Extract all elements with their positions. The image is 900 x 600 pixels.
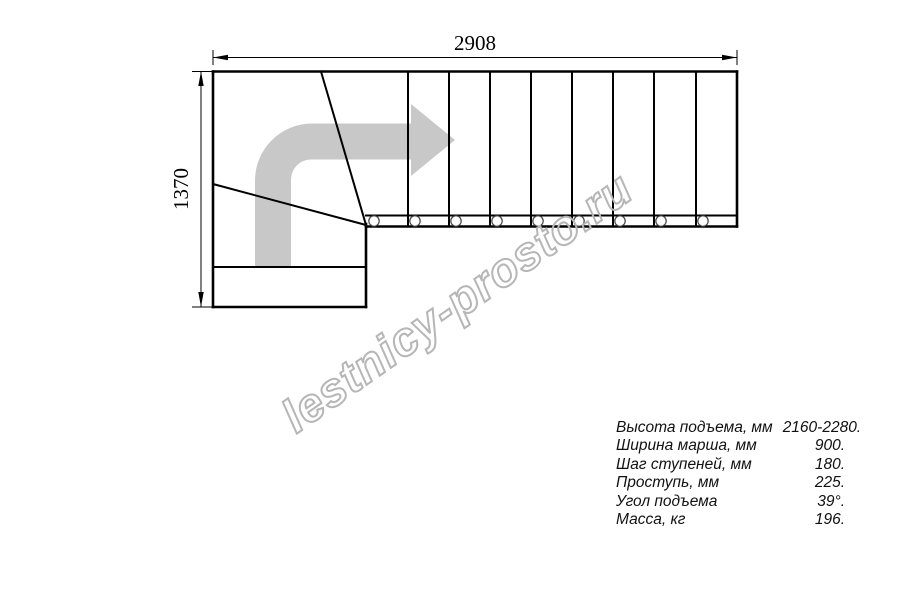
dimension-arrow-right-icon — [722, 55, 737, 60]
spec-label: Шаг ступеней, мм — [616, 456, 752, 474]
spec-value: 900. — [805, 437, 845, 455]
baluster-markers — [369, 216, 708, 226]
staircase-drawing-page: 2908 1370 — [0, 0, 900, 600]
staircase-outline — [213, 72, 737, 308]
baluster-icon — [656, 216, 666, 226]
dimension-arrow-up-icon — [198, 72, 203, 87]
baluster-icon — [574, 216, 584, 226]
baluster-icon — [451, 216, 461, 226]
height-dimension-label: 1370 — [169, 168, 193, 210]
spec-value: 196. — [805, 511, 845, 529]
spec-label: Проступь, мм — [616, 474, 719, 492]
spec-label: Высота подъема, мм — [616, 419, 773, 437]
spec-value: 2160-2280. — [773, 419, 861, 437]
spec-row: Проступь, мм 225. — [616, 474, 845, 492]
spec-row: Высота подъема, мм 2160-2280. — [616, 419, 845, 437]
height-dimension — [192, 72, 214, 308]
spec-label: Ширина марша, мм — [616, 437, 757, 455]
spec-value: 180. — [805, 456, 845, 474]
spec-label: Угол подъема — [616, 493, 717, 511]
spec-row: Масса, кг 196. — [616, 511, 845, 529]
spec-row: Угол подъема 39°. — [616, 493, 845, 511]
spec-row: Шаг ступеней, мм 180. — [616, 456, 845, 474]
width-dimension-label: 2908 — [454, 31, 496, 55]
spec-value: 225. — [805, 474, 845, 492]
baluster-icon — [615, 216, 625, 226]
spec-table: Высота подъема, мм 2160-2280. Ширина мар… — [616, 419, 845, 529]
baluster-icon — [533, 216, 543, 226]
spec-label: Масса, кг — [616, 511, 685, 529]
baluster-icon — [698, 216, 708, 226]
baluster-icon — [369, 216, 379, 226]
dimension-arrow-left-icon — [213, 55, 228, 60]
dimension-arrow-down-icon — [198, 292, 203, 307]
baluster-icon — [410, 216, 420, 226]
baluster-icon — [492, 216, 502, 226]
spec-row: Ширина марша, мм 900. — [616, 437, 845, 455]
spec-value: 39°. — [807, 493, 845, 511]
